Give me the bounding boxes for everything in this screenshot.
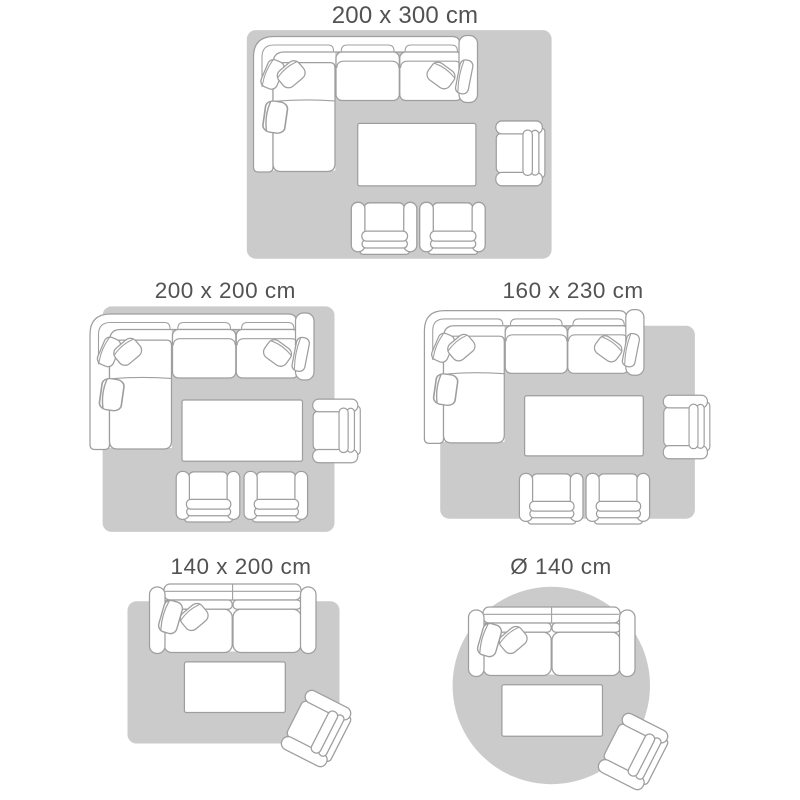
svg-text:200 x 300 cm: 200 x 300 cm: [332, 2, 478, 29]
svg-text:200 x 200 cm: 200 x 200 cm: [155, 278, 296, 303]
svg-text:160 x 230 cm: 160 x 230 cm: [503, 278, 644, 303]
svg-text:Ø 140 cm: Ø 140 cm: [510, 554, 612, 579]
svg-text:140 x 200 cm: 140 x 200 cm: [170, 554, 311, 579]
